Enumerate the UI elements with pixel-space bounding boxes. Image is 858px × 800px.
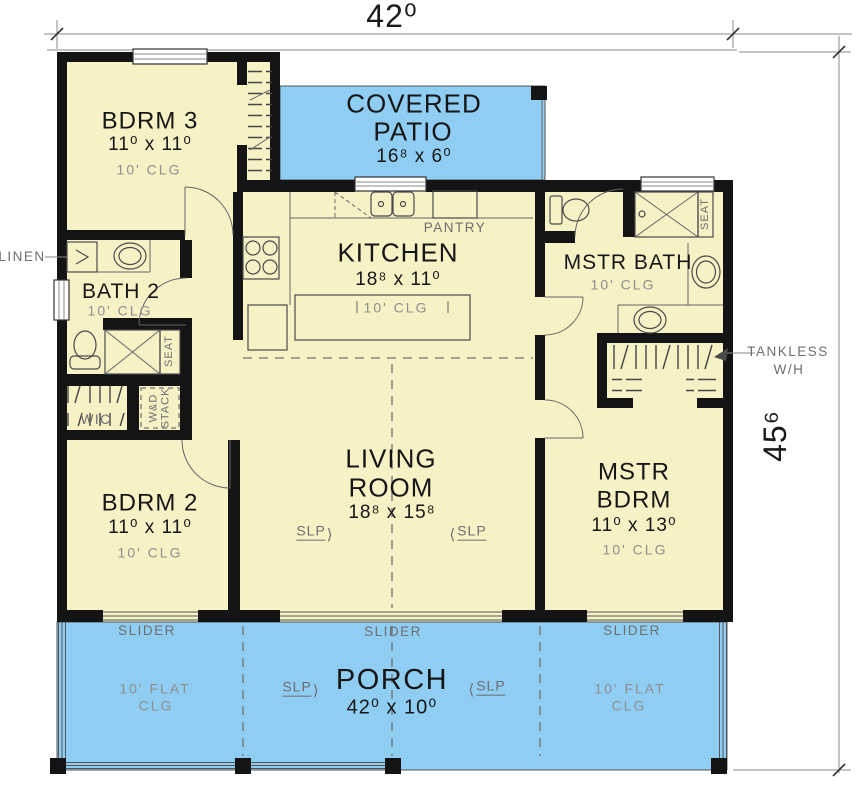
wd-label-line2: STACK (160, 388, 172, 429)
floor-plan: 42⁰ 45⁶ BDRM 3 11⁰ x 11⁰ 10' CLG COVERED… (0, 0, 858, 800)
slp-label: SLP (457, 524, 486, 541)
slp-label: SLP (296, 524, 325, 541)
bath2-shower-seat-label: SEAT (164, 335, 176, 367)
slider-label-right: SLIDER (603, 624, 661, 638)
slp-label: SLP (282, 680, 311, 697)
mstr-bdrm-size: 11⁰ x 13⁰ (591, 516, 676, 536)
width-dimension: 42⁰ (366, 0, 417, 34)
kitchen-size: 18⁸ x 11⁰ (355, 270, 441, 290)
porch-flat-clg-left-2: CLG (139, 699, 174, 714)
porch-flat-clg-right-1: 10' FLAT (594, 682, 665, 697)
wic-label: WIC (81, 413, 112, 427)
height-dimension: 45⁶ (759, 410, 793, 462)
bdrm3-name: BDRM 3 (102, 108, 199, 133)
slope-arrow-left-icon: ⟨ (449, 528, 456, 544)
bath2-name: BATH 2 (82, 281, 160, 303)
kitchen-name: KITCHEN (337, 239, 458, 266)
living-slope-left: ⟨SLP (449, 524, 486, 541)
wd-label-line1: W&D (148, 388, 160, 429)
linen-label: LINEN (0, 250, 46, 264)
porch-flat-clg-right-2: CLG (612, 699, 647, 714)
mstr-bdrm-name-2: BDRM (597, 487, 672, 512)
bdrm3-closet (248, 63, 272, 179)
mstr-bath-ceiling: 10' CLG (591, 278, 656, 293)
slope-arrow-right-icon: ⟩ (327, 528, 334, 544)
patio-size: 16⁸ x 6⁰ (376, 147, 451, 167)
tankless-label-2: W/H (774, 363, 805, 377)
living-slope-right: SLP⟩ (296, 524, 333, 541)
mstr-bath-name: MSTR BATH (564, 252, 693, 274)
porch-size: 42⁰ x 10⁰ (347, 698, 438, 719)
porch-flat-clg-left-1: 10' FLAT (119, 682, 190, 697)
slider-label-middle: SLIDER (364, 625, 422, 639)
bdrm2-size: 11⁰ x 11⁰ (108, 518, 192, 538)
living-room-size: 18⁸ x 15⁸ (348, 503, 435, 523)
mstr-bdrm-ceiling: 10' CLG (603, 543, 668, 558)
wd-stack-label: W&DSTACK (148, 388, 171, 429)
mstr-bdrm-name-1: MSTR (598, 459, 670, 484)
bdrm3-ceiling: 10' CLG (117, 163, 182, 178)
bdrm2-name: BDRM 2 (102, 490, 199, 515)
bdrm3-size: 11⁰ x 11⁰ (108, 135, 192, 155)
porch-name: PORCH (336, 665, 448, 695)
kitchen-ceiling: 10' CLG (364, 301, 429, 316)
patio-name-2: PATIO (373, 118, 452, 145)
slp-label: SLP (476, 679, 505, 696)
bdrm2-ceiling: 10' CLG (118, 546, 183, 561)
porch-slope-right: SLP⟩ (282, 680, 319, 697)
porch-slope-left: ⟨SLP (468, 679, 505, 696)
pantry-label: PANTRY (424, 221, 487, 235)
slope-arrow-left-icon: ⟨ (468, 683, 475, 699)
slider-label-left: SLIDER (118, 624, 176, 638)
tankless-label-1: TANKLESS (747, 345, 829, 359)
slope-arrow-right-icon: ⟩ (313, 684, 320, 700)
bath2-ceiling: 10' CLG (88, 304, 153, 319)
living-room-name-1: LIVING (345, 445, 436, 472)
mstr-shower-seat-label: SEAT (700, 198, 712, 230)
living-room-name-2: ROOM (349, 474, 434, 501)
patio-name-1: COVERED (346, 90, 482, 117)
